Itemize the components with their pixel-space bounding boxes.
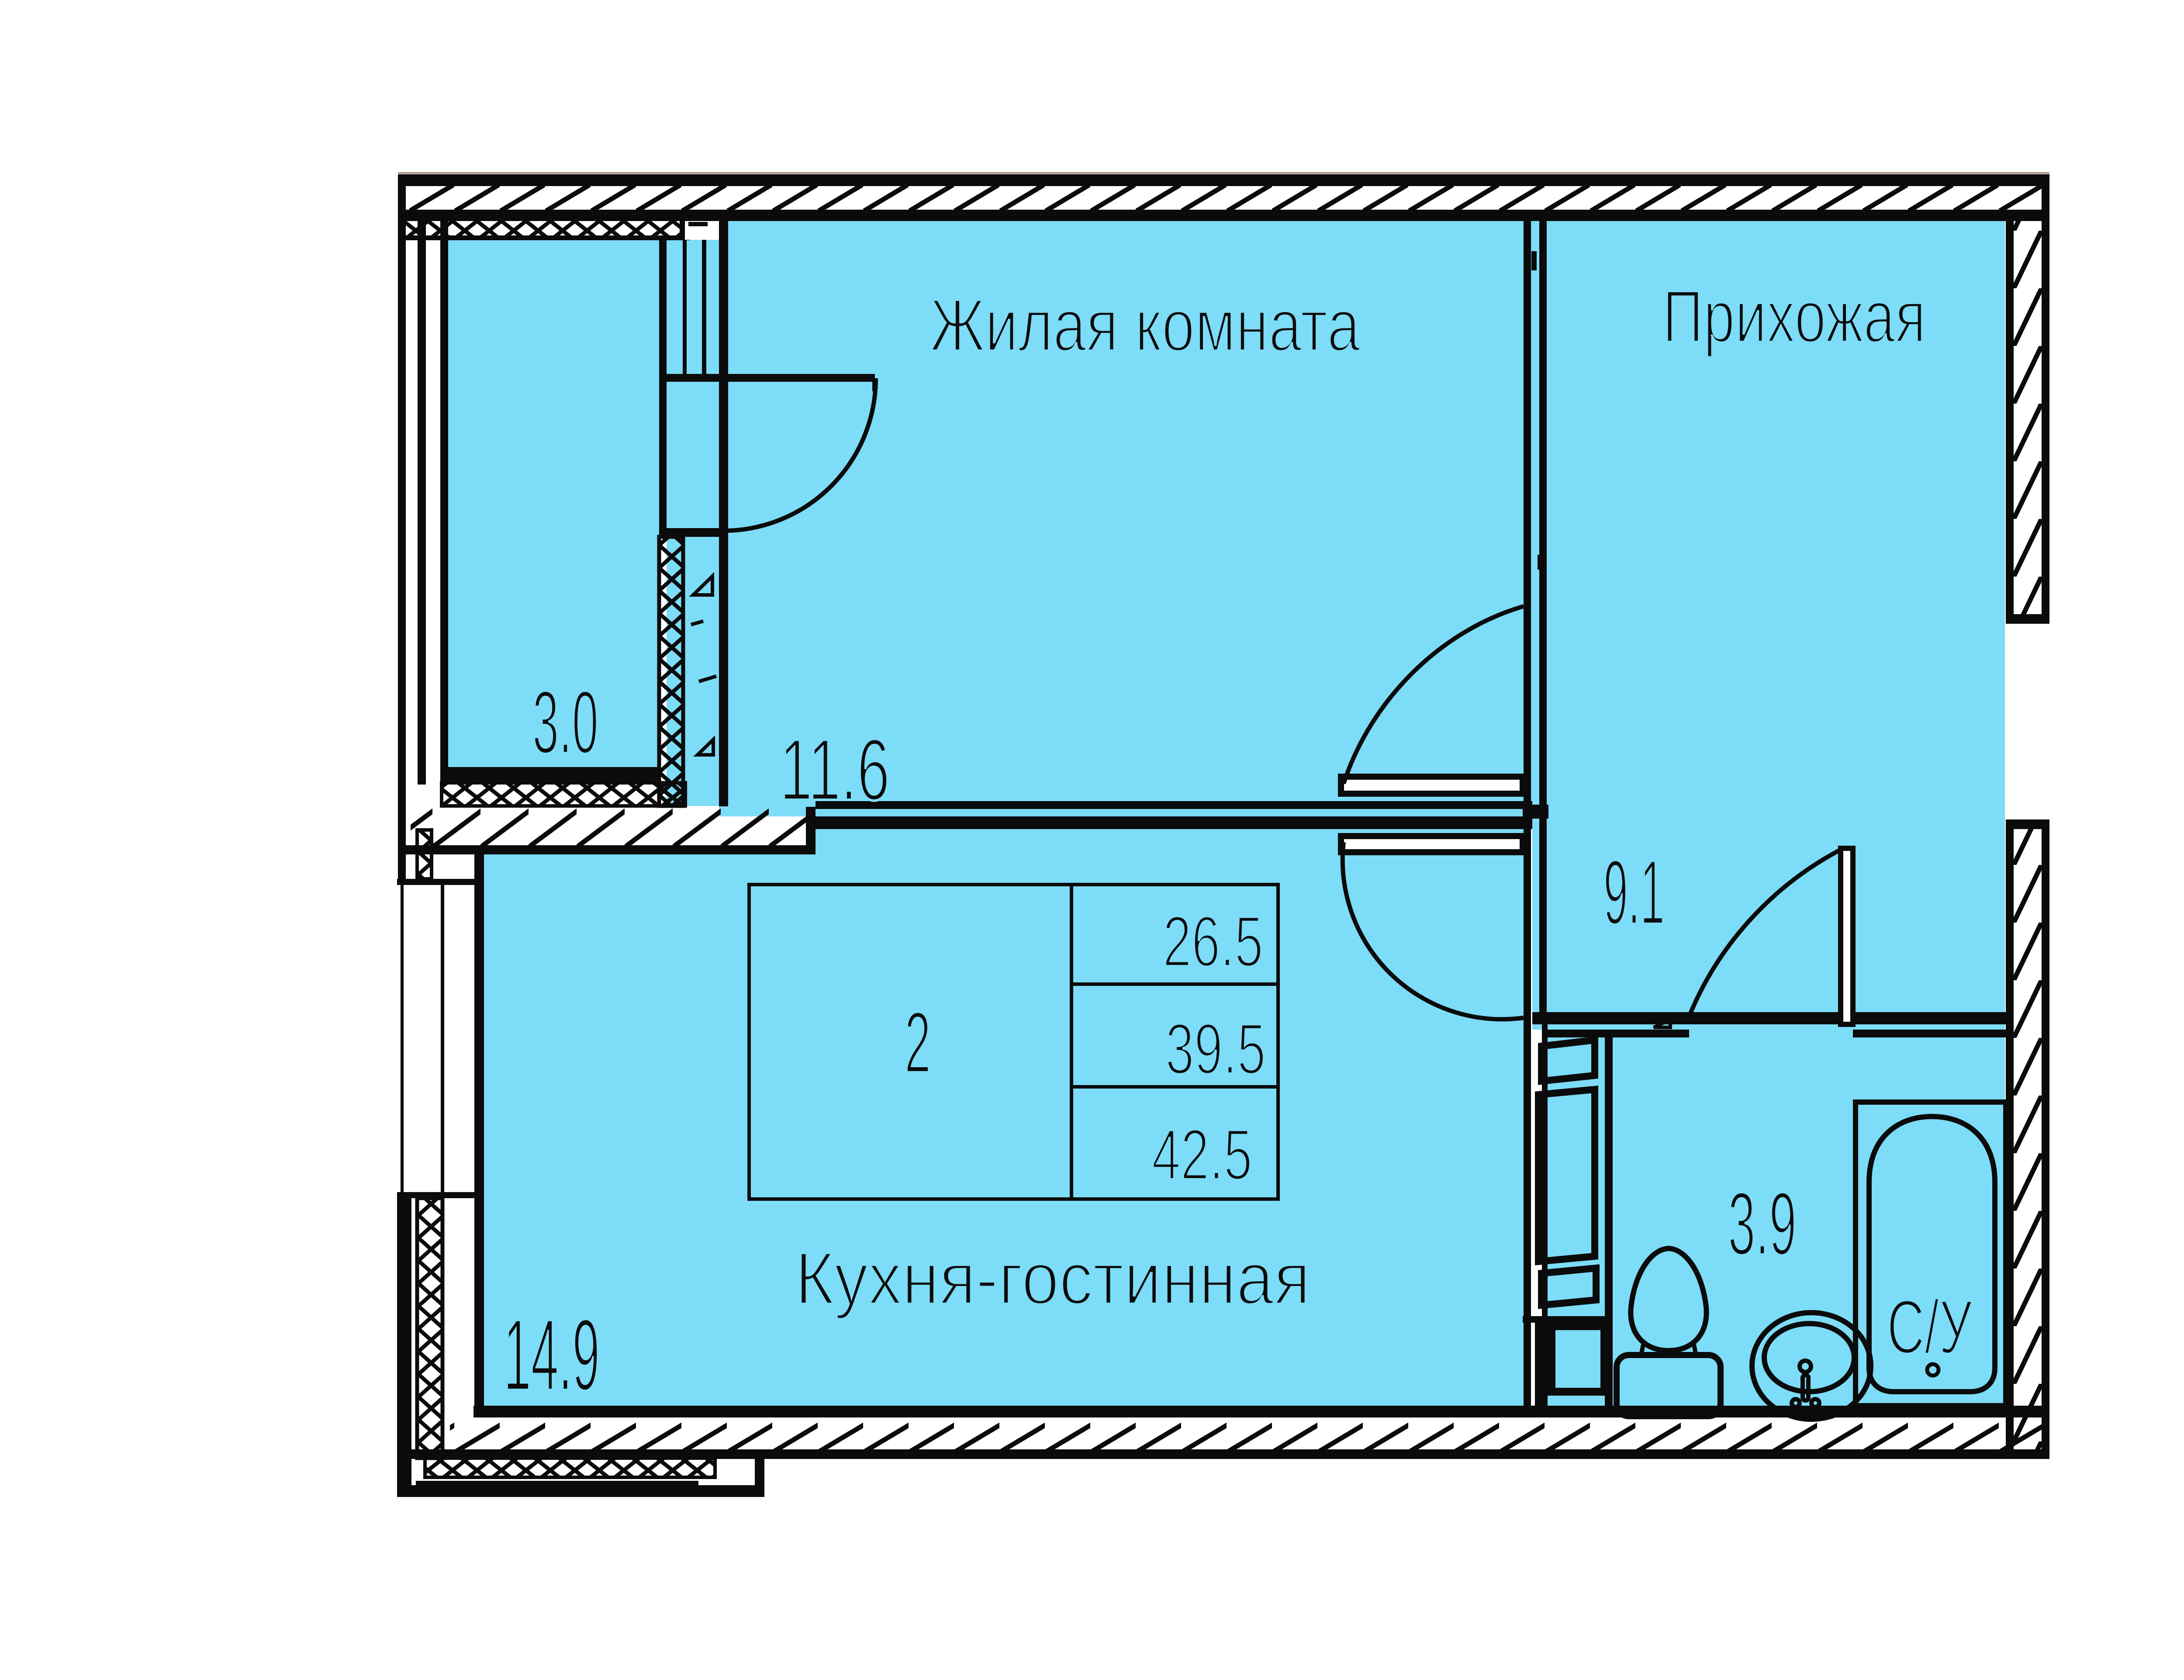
svg-text:9.1: 9.1: [1603, 841, 1665, 944]
svg-text:42.5: 42.5: [1152, 1114, 1252, 1195]
svg-text:Жилая комната: Жилая комната: [930, 284, 1360, 367]
svg-text:39.5: 39.5: [1165, 1009, 1266, 1089]
svg-text:11.6: 11.6: [780, 721, 890, 819]
svg-text:Прихожая: Прихожая: [1662, 275, 1926, 358]
svg-text:2: 2: [905, 994, 931, 1091]
svg-text:Кухня-гостинная: Кухня-гостинная: [795, 1237, 1310, 1320]
svg-text:3.0: 3.0: [532, 672, 598, 772]
svg-text:3.9: 3.9: [1728, 1174, 1797, 1274]
svg-text:26.5: 26.5: [1163, 901, 1263, 982]
svg-text:14.9: 14.9: [504, 1298, 600, 1412]
svg-text:С/У: С/У: [1887, 1285, 1973, 1370]
